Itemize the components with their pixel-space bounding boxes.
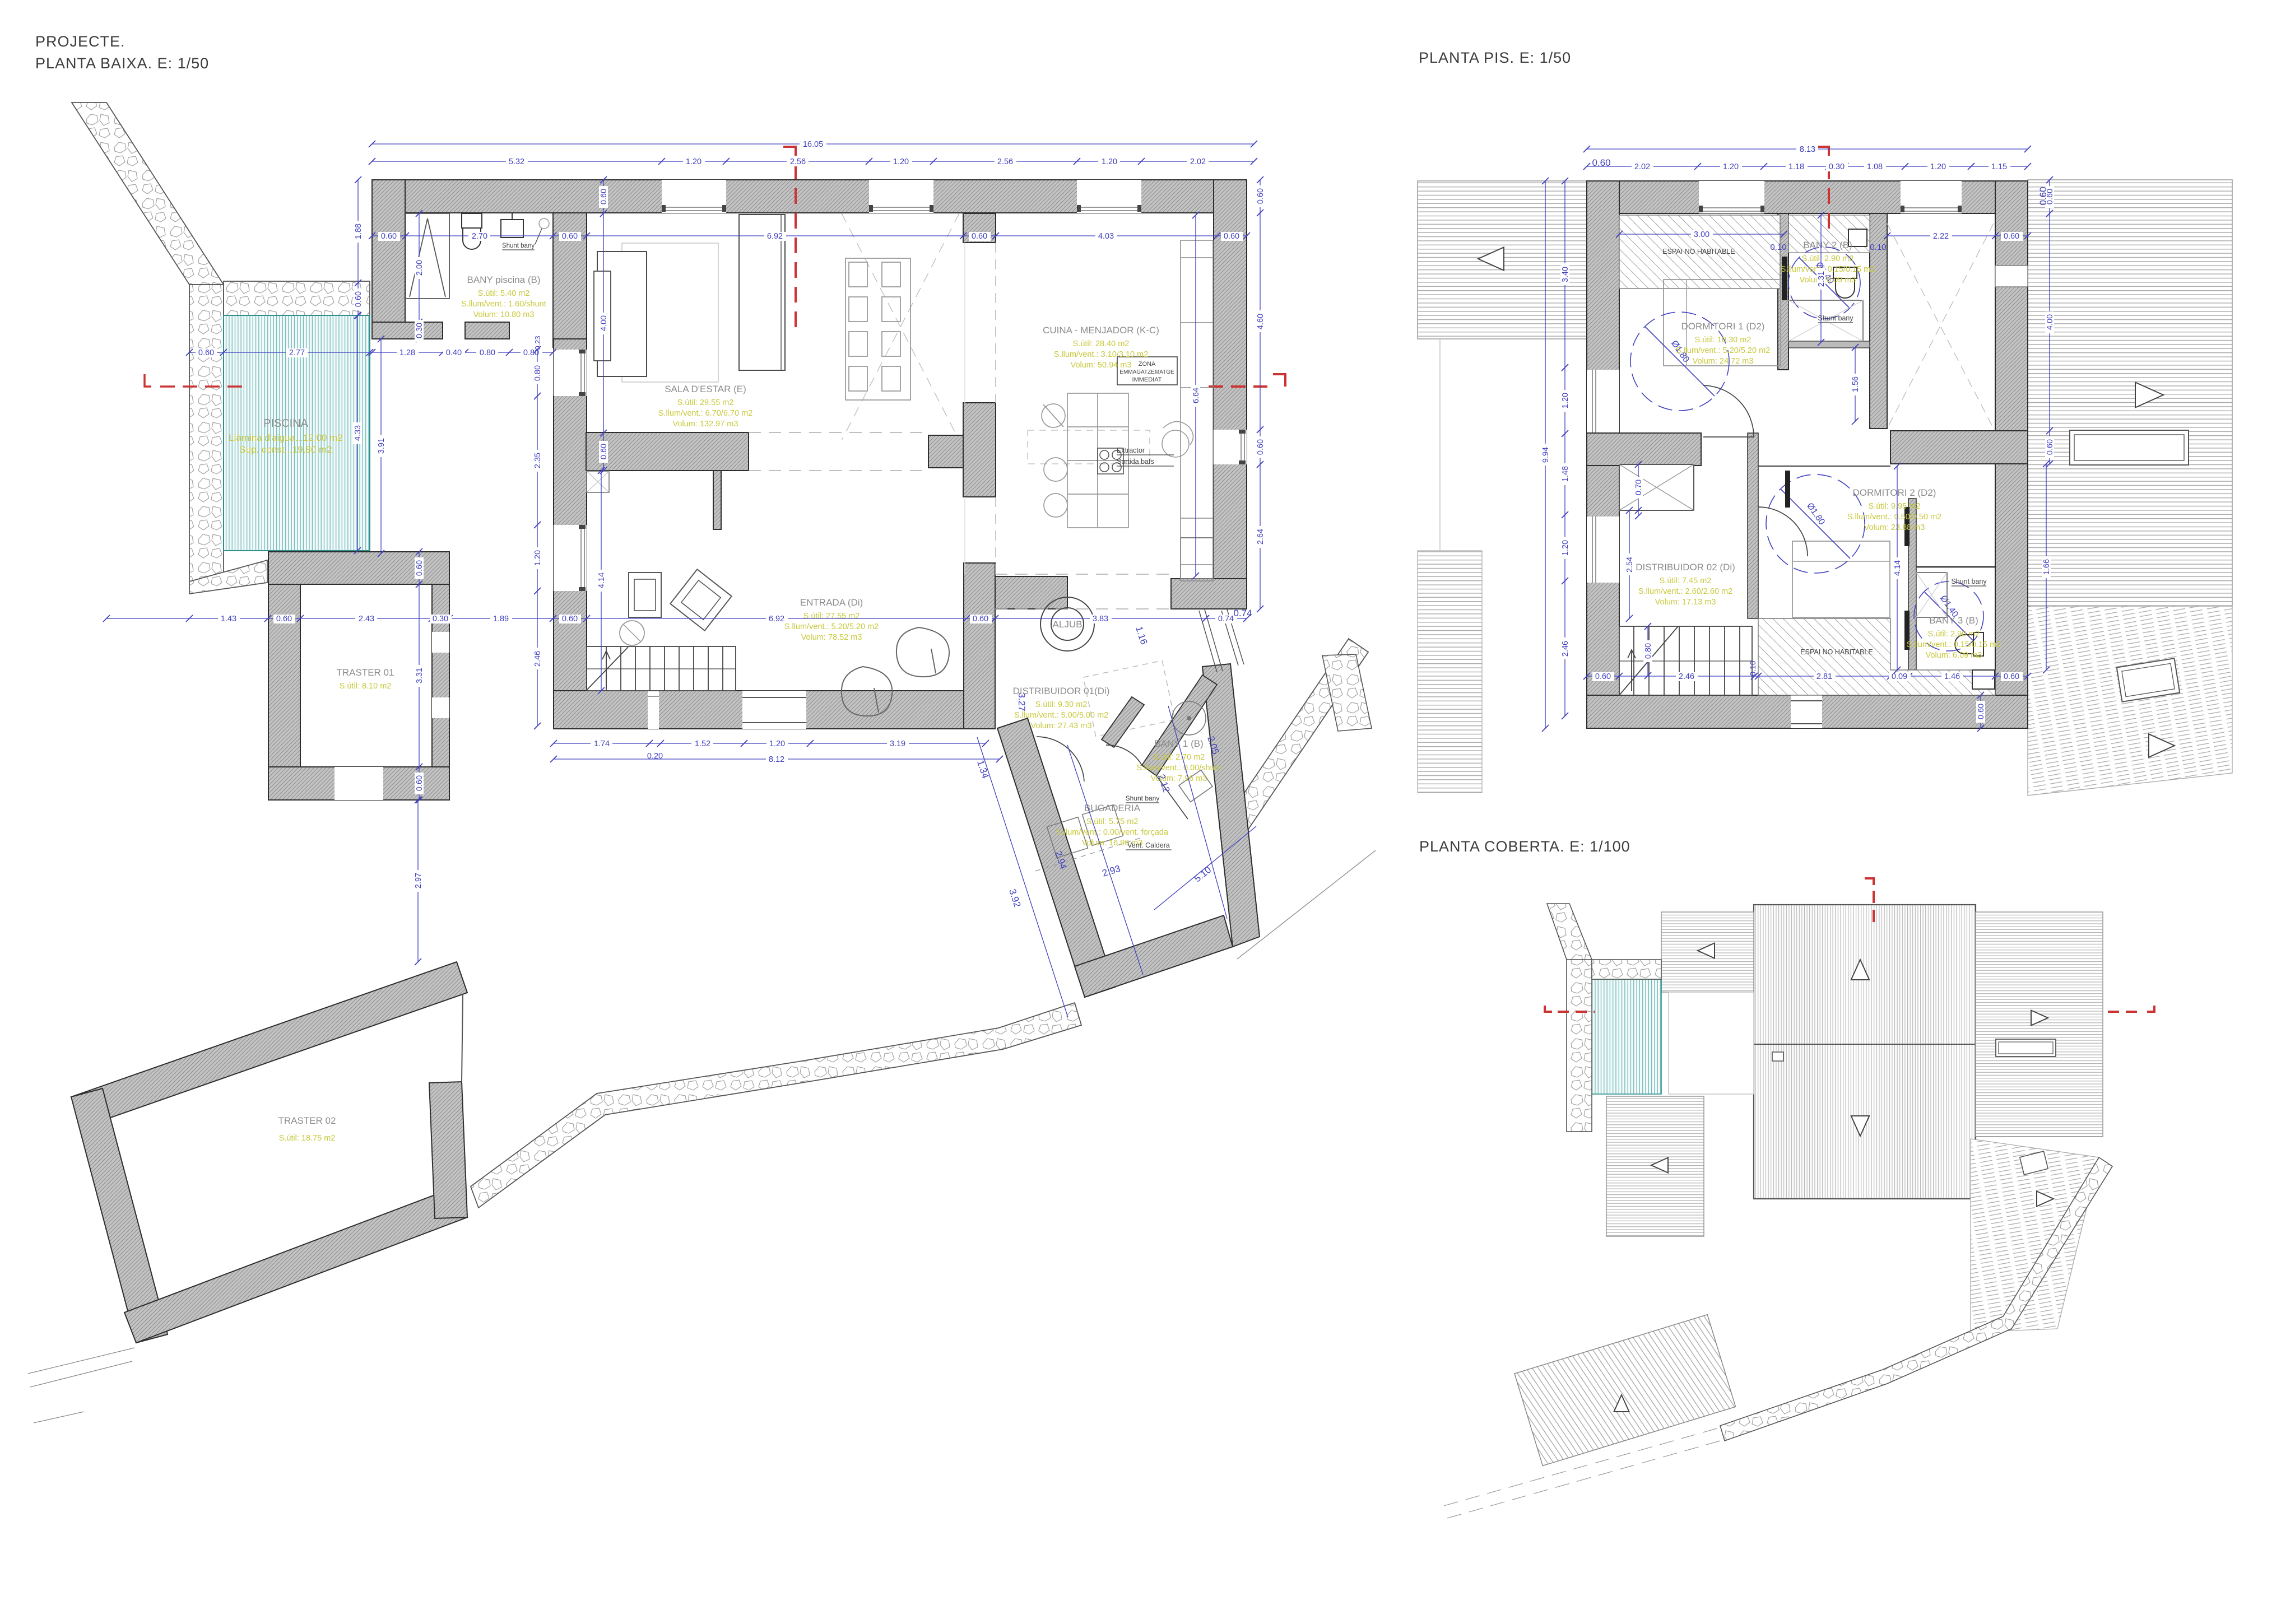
- svg-text:0.60: 0.60: [2046, 439, 2055, 455]
- svg-text:S.útil: 2.70 m2: S.útil: 2.70 m2: [1153, 753, 1205, 762]
- svg-text:PLANTA BAIXA. E: 1/50: PLANTA BAIXA. E: 1/50: [35, 55, 209, 72]
- svg-text:1.20: 1.20: [769, 739, 785, 748]
- svg-text:S.útil: 8.10 m2: S.útil: 8.10 m2: [340, 682, 392, 691]
- svg-text:0.60: 0.60: [2004, 232, 2019, 241]
- svg-text:BANY piscina (B): BANY piscina (B): [467, 274, 540, 285]
- svg-text:1.88: 1.88: [354, 224, 363, 239]
- svg-text:1.46: 1.46: [1944, 672, 1960, 681]
- svg-text:S.llum/vent.: 0.50/0.50 m2: S.llum/vent.: 0.50/0.50 m2: [1847, 513, 1941, 522]
- svg-text:S.llum/vent.: 0.00/shunt: S.llum/vent.: 0.00/shunt: [1136, 764, 1221, 773]
- svg-text:1.20: 1.20: [893, 157, 909, 166]
- svg-text:2.02: 2.02: [1634, 162, 1650, 171]
- svg-text:0.23: 0.23: [533, 336, 542, 350]
- svg-text:2.81: 2.81: [1817, 672, 1832, 681]
- svg-text:0.30: 0.30: [433, 615, 448, 623]
- svg-text:Volum: 10.80 m3: Volum: 10.80 m3: [473, 310, 535, 319]
- svg-text:0.60: 0.60: [381, 232, 397, 241]
- svg-text:9.94: 9.94: [1541, 447, 1550, 463]
- svg-text:TRASTER 01: TRASTER 01: [337, 667, 394, 678]
- svg-text:0.30: 0.30: [1829, 162, 1845, 171]
- svg-text:1.15: 1.15: [1991, 162, 2007, 171]
- svg-text:0.60: 0.60: [1224, 232, 1239, 241]
- svg-text:0.60: 0.60: [973, 615, 988, 623]
- svg-text:1.89: 1.89: [493, 615, 509, 623]
- svg-text:4.14: 4.14: [1893, 560, 1902, 576]
- svg-text:0.60: 0.60: [600, 189, 608, 204]
- svg-text:3.83: 3.83: [1093, 615, 1108, 623]
- svg-text:0.60: 0.60: [1977, 704, 1986, 719]
- svg-text:2.02: 2.02: [1190, 157, 1206, 166]
- svg-text:DORMITORI 2 (D2): DORMITORI 2 (D2): [1853, 487, 1936, 498]
- svg-text:ESPAI NO HABITABLE: ESPAI NO HABITABLE: [1662, 248, 1735, 255]
- svg-text:1.56: 1.56: [1851, 376, 1860, 392]
- svg-text:DORMITORI 1 (D2): DORMITORI 1 (D2): [1681, 321, 1765, 332]
- svg-text:0.60: 0.60: [276, 615, 292, 623]
- svg-text:S.útil: 27.55 m2: S.útil: 27.55 m2: [803, 612, 860, 621]
- svg-text:Volum: 24.72 m3: Volum: 24.72 m3: [1693, 357, 1754, 366]
- svg-text:0.10: 0.10: [1748, 660, 1757, 676]
- svg-text:2.00: 2.00: [415, 260, 424, 276]
- svg-text:PLANTA COBERTA. E: 1/100: PLANTA COBERTA. E: 1/100: [1419, 838, 1630, 855]
- svg-text:2.70: 2.70: [472, 232, 487, 241]
- svg-text:0.30: 0.30: [415, 323, 424, 338]
- svg-text:2.35: 2.35: [533, 453, 542, 468]
- svg-text:4.33: 4.33: [354, 425, 363, 441]
- svg-text:S.llum/vent.: 0.00/vent. força: S.llum/vent.: 0.00/vent. forçada: [1056, 828, 1169, 837]
- svg-text:Vent. Caldera: Vent. Caldera: [1127, 841, 1170, 849]
- svg-text:ZONA: ZONA: [1139, 361, 1156, 367]
- svg-text:2.77: 2.77: [289, 348, 305, 357]
- svg-text:0.60: 0.60: [1592, 157, 1610, 168]
- svg-text:S.llum/vent.: 0.15/0.15 m2: S.llum/vent.: 0.15/0.15 m2: [1781, 265, 1875, 274]
- svg-text:0.60: 0.60: [562, 615, 578, 623]
- svg-text:2.97: 2.97: [414, 873, 423, 888]
- svg-text:Volum: 6.09 m3: Volum: 6.09 m3: [1926, 651, 1982, 660]
- svg-text:0.60: 0.60: [354, 291, 363, 307]
- svg-text:2.46: 2.46: [1561, 641, 1570, 657]
- svg-text:S.útil: 10.30 m2: S.útil: 10.30 m2: [1695, 336, 1752, 345]
- svg-text:0.80: 0.80: [1644, 643, 1653, 659]
- svg-text:Volum: 50.94 m3: Volum: 50.94 m3: [1071, 361, 1132, 370]
- svg-text:Volum: 27.43 m3: Volum: 27.43 m3: [1031, 722, 1092, 730]
- svg-text:DISTRIBUIDOR 02 (Di): DISTRIBUIDOR 02 (Di): [1636, 562, 1735, 573]
- svg-text:0.60: 0.60: [1595, 672, 1611, 681]
- svg-text:2.56: 2.56: [997, 157, 1013, 166]
- svg-text:1.28: 1.28: [399, 348, 415, 357]
- svg-text:BANY 2 (B): BANY 2 (B): [1803, 240, 1852, 250]
- svg-text:0.70: 0.70: [1634, 480, 1643, 495]
- svg-text:EMMAGATZEMATGE: EMMAGATZEMATGE: [1119, 369, 1174, 375]
- svg-text:Shunt bany: Shunt bany: [502, 243, 535, 249]
- svg-text:0.80: 0.80: [533, 365, 542, 381]
- svg-text:ALJUB: ALJUB: [1053, 619, 1083, 630]
- svg-text:1.66: 1.66: [2042, 559, 2051, 575]
- svg-text:1.20: 1.20: [686, 157, 701, 166]
- svg-text:CUINA - MENJADOR (K-C): CUINA - MENJADOR (K-C): [1043, 325, 1159, 336]
- svg-text:3.19: 3.19: [890, 739, 905, 748]
- svg-text:2.46: 2.46: [533, 651, 542, 667]
- svg-text:Volum: 23.88 m3: Volum: 23.88 m3: [1864, 523, 1925, 532]
- svg-text:S.llum/vent.: 5.20/5.20 m2: S.llum/vent.: 5.20/5.20 m2: [784, 622, 879, 631]
- svg-text:BUGADERIA: BUGADERIA: [1084, 803, 1141, 813]
- svg-text:ENTRADA (Di): ENTRADA (Di): [800, 597, 863, 608]
- svg-text:S.útil: 5.40 m2: S.útil: 5.40 m2: [478, 289, 530, 298]
- svg-text:1.20: 1.20: [1930, 162, 1946, 171]
- svg-text:3.00: 3.00: [1694, 230, 1709, 239]
- svg-text:S.útil: 9.30 m2: S.útil: 9.30 m2: [1035, 700, 1088, 709]
- svg-text:1.74: 1.74: [594, 739, 610, 748]
- svg-text:0.10: 0.10: [1770, 243, 1786, 252]
- svg-text:1.20: 1.20: [1561, 393, 1570, 408]
- svg-text:6.92: 6.92: [767, 232, 783, 241]
- svg-text:PISCINA: PISCINA: [263, 417, 309, 430]
- svg-text:1.20: 1.20: [533, 550, 542, 566]
- svg-text:2.46: 2.46: [1679, 672, 1694, 681]
- svg-text:3.31: 3.31: [415, 668, 424, 683]
- svg-text:3.27: 3.27: [1016, 692, 1027, 711]
- svg-text:0.60: 0.60: [2038, 187, 2048, 205]
- svg-text:6.64: 6.64: [1192, 388, 1201, 403]
- svg-text:1.08: 1.08: [1867, 162, 1883, 171]
- svg-text:0.60: 0.60: [415, 560, 424, 576]
- svg-text:2.54: 2.54: [1625, 557, 1634, 573]
- svg-text:4.60: 4.60: [1256, 314, 1265, 329]
- svg-text:PROJECTE.: PROJECTE.: [35, 33, 126, 50]
- svg-text:2.43: 2.43: [359, 615, 374, 623]
- svg-text:1.20: 1.20: [1723, 162, 1739, 171]
- svg-text:S.llum/vent.: 1.60/shunt: S.llum/vent.: 1.60/shunt: [461, 300, 546, 309]
- svg-text:Shunt bany: Shunt bany: [1126, 794, 1160, 802]
- svg-text:Llàmina d'aigua...12.00 m2: Llàmina d'aigua...12.00 m2: [229, 432, 343, 443]
- svg-text:S.útil: 2.90 m2: S.útil: 2.90 m2: [1802, 254, 1854, 263]
- svg-text:0.60: 0.60: [198, 348, 214, 357]
- svg-text:0.74: 0.74: [1233, 608, 1252, 618]
- svg-text:3.40: 3.40: [1561, 267, 1570, 282]
- svg-text:0.74: 0.74: [1218, 615, 1234, 623]
- svg-text:2.64: 2.64: [1256, 529, 1265, 545]
- svg-text:3.91: 3.91: [377, 438, 386, 454]
- svg-text:S.llum/vent.: 5.20/5.20 m2: S.llum/vent.: 5.20/5.20 m2: [1676, 346, 1770, 355]
- svg-text:S.útil: 18.75 m2: S.útil: 18.75 m2: [279, 1134, 336, 1143]
- svg-text:S.útil: 29.55 m2: S.útil: 29.55 m2: [677, 398, 734, 407]
- svg-text:0.60: 0.60: [2004, 672, 2019, 681]
- svg-text:0.60: 0.60: [415, 775, 424, 791]
- svg-text:S.llum/vent.: 3.10/3.10 m2: S.llum/vent.: 3.10/3.10 m2: [1054, 350, 1148, 359]
- svg-text:1.43: 1.43: [221, 615, 236, 623]
- svg-text:4.14: 4.14: [597, 573, 606, 588]
- svg-text:Shunt bany: Shunt bany: [1951, 578, 1987, 585]
- svg-text:S.llum/vent.: 2.60/2.60 m2: S.llum/vent.: 2.60/2.60 m2: [1638, 587, 1732, 596]
- svg-text:0.60: 0.60: [1256, 188, 1265, 204]
- svg-text:S.útil: 2.90 m2: S.útil: 2.90 m2: [1928, 630, 1980, 639]
- svg-text:1.20: 1.20: [1561, 540, 1570, 556]
- svg-text:Volum: 132.97 m3: Volum: 132.97 m3: [673, 420, 738, 429]
- svg-text:6.92: 6.92: [769, 615, 784, 623]
- svg-text:0.10: 0.10: [1870, 243, 1886, 252]
- svg-text:BANY 3 (B): BANY 3 (B): [1929, 615, 1978, 626]
- svg-text:0.60: 0.60: [600, 444, 608, 459]
- svg-text:5.32: 5.32: [509, 157, 524, 166]
- svg-text:1.18: 1.18: [1788, 162, 1804, 171]
- svg-text:Volum: 6.09 m3: Volum: 6.09 m3: [1800, 276, 1856, 285]
- svg-text:0.60: 0.60: [972, 232, 987, 241]
- svg-text:1.48: 1.48: [1561, 466, 1570, 482]
- svg-text:Volum: 78.52 m3: Volum: 78.52 m3: [801, 633, 862, 642]
- svg-text:0.80: 0.80: [480, 348, 495, 357]
- svg-text:4.00: 4.00: [600, 315, 608, 331]
- svg-text:SALA D'ESTAR (E): SALA D'ESTAR (E): [665, 384, 746, 394]
- svg-text:S.útil: 9.95 m2: S.útil: 9.95 m2: [1869, 502, 1921, 511]
- svg-text:S.útil: 7.45 m2: S.útil: 7.45 m2: [1660, 576, 1712, 585]
- svg-text:2.22: 2.22: [1933, 232, 1949, 241]
- svg-text:TRASTER 02: TRASTER 02: [278, 1115, 336, 1126]
- svg-text:8.13: 8.13: [1800, 145, 1815, 154]
- svg-text:Volum: 17.13 m3: Volum: 17.13 m3: [1655, 598, 1716, 607]
- svg-text:2.31: 2.31: [1817, 271, 1826, 287]
- svg-text:1.52: 1.52: [695, 739, 710, 748]
- svg-text:Extractor: Extractor: [1117, 446, 1145, 454]
- svg-text:0.40: 0.40: [446, 348, 462, 357]
- svg-text:PLANTA PIS. E: 1/50: PLANTA PIS. E: 1/50: [1419, 49, 1571, 66]
- svg-text:16.05: 16.05: [803, 140, 823, 149]
- svg-text:S.útil: 28.40 m2: S.útil: 28.40 m2: [1073, 339, 1130, 348]
- svg-text:0.60: 0.60: [562, 232, 578, 241]
- svg-text:S.llum/vent.: 0.15/0.15 m2: S.llum/vent.: 0.15/0.15 m2: [1907, 640, 2001, 649]
- svg-text:0.09: 0.09: [1892, 672, 1907, 681]
- svg-text:IMMEDIAT: IMMEDIAT: [1132, 376, 1162, 383]
- svg-text:0.60: 0.60: [1256, 439, 1265, 455]
- svg-text:8.12: 8.12: [769, 755, 784, 764]
- svg-text:2.56: 2.56: [790, 157, 806, 166]
- svg-text:ESPAI NO HABITABLE: ESPAI NO HABITABLE: [1800, 648, 1873, 656]
- svg-text:Shunt bany: Shunt bany: [1818, 314, 1853, 322]
- svg-text:Sup. const...19.80 m2: Sup. const...19.80 m2: [239, 444, 332, 455]
- svg-text:1.20: 1.20: [1102, 157, 1117, 166]
- svg-text:4.03: 4.03: [1098, 232, 1114, 241]
- svg-text:S.llum/vent.: 6.70/6.70 m2: S.llum/vent.: 6.70/6.70 m2: [658, 409, 752, 418]
- svg-text:Sortida bafs: Sortida bafs: [1117, 458, 1154, 466]
- svg-text:4.00: 4.00: [2046, 314, 2055, 330]
